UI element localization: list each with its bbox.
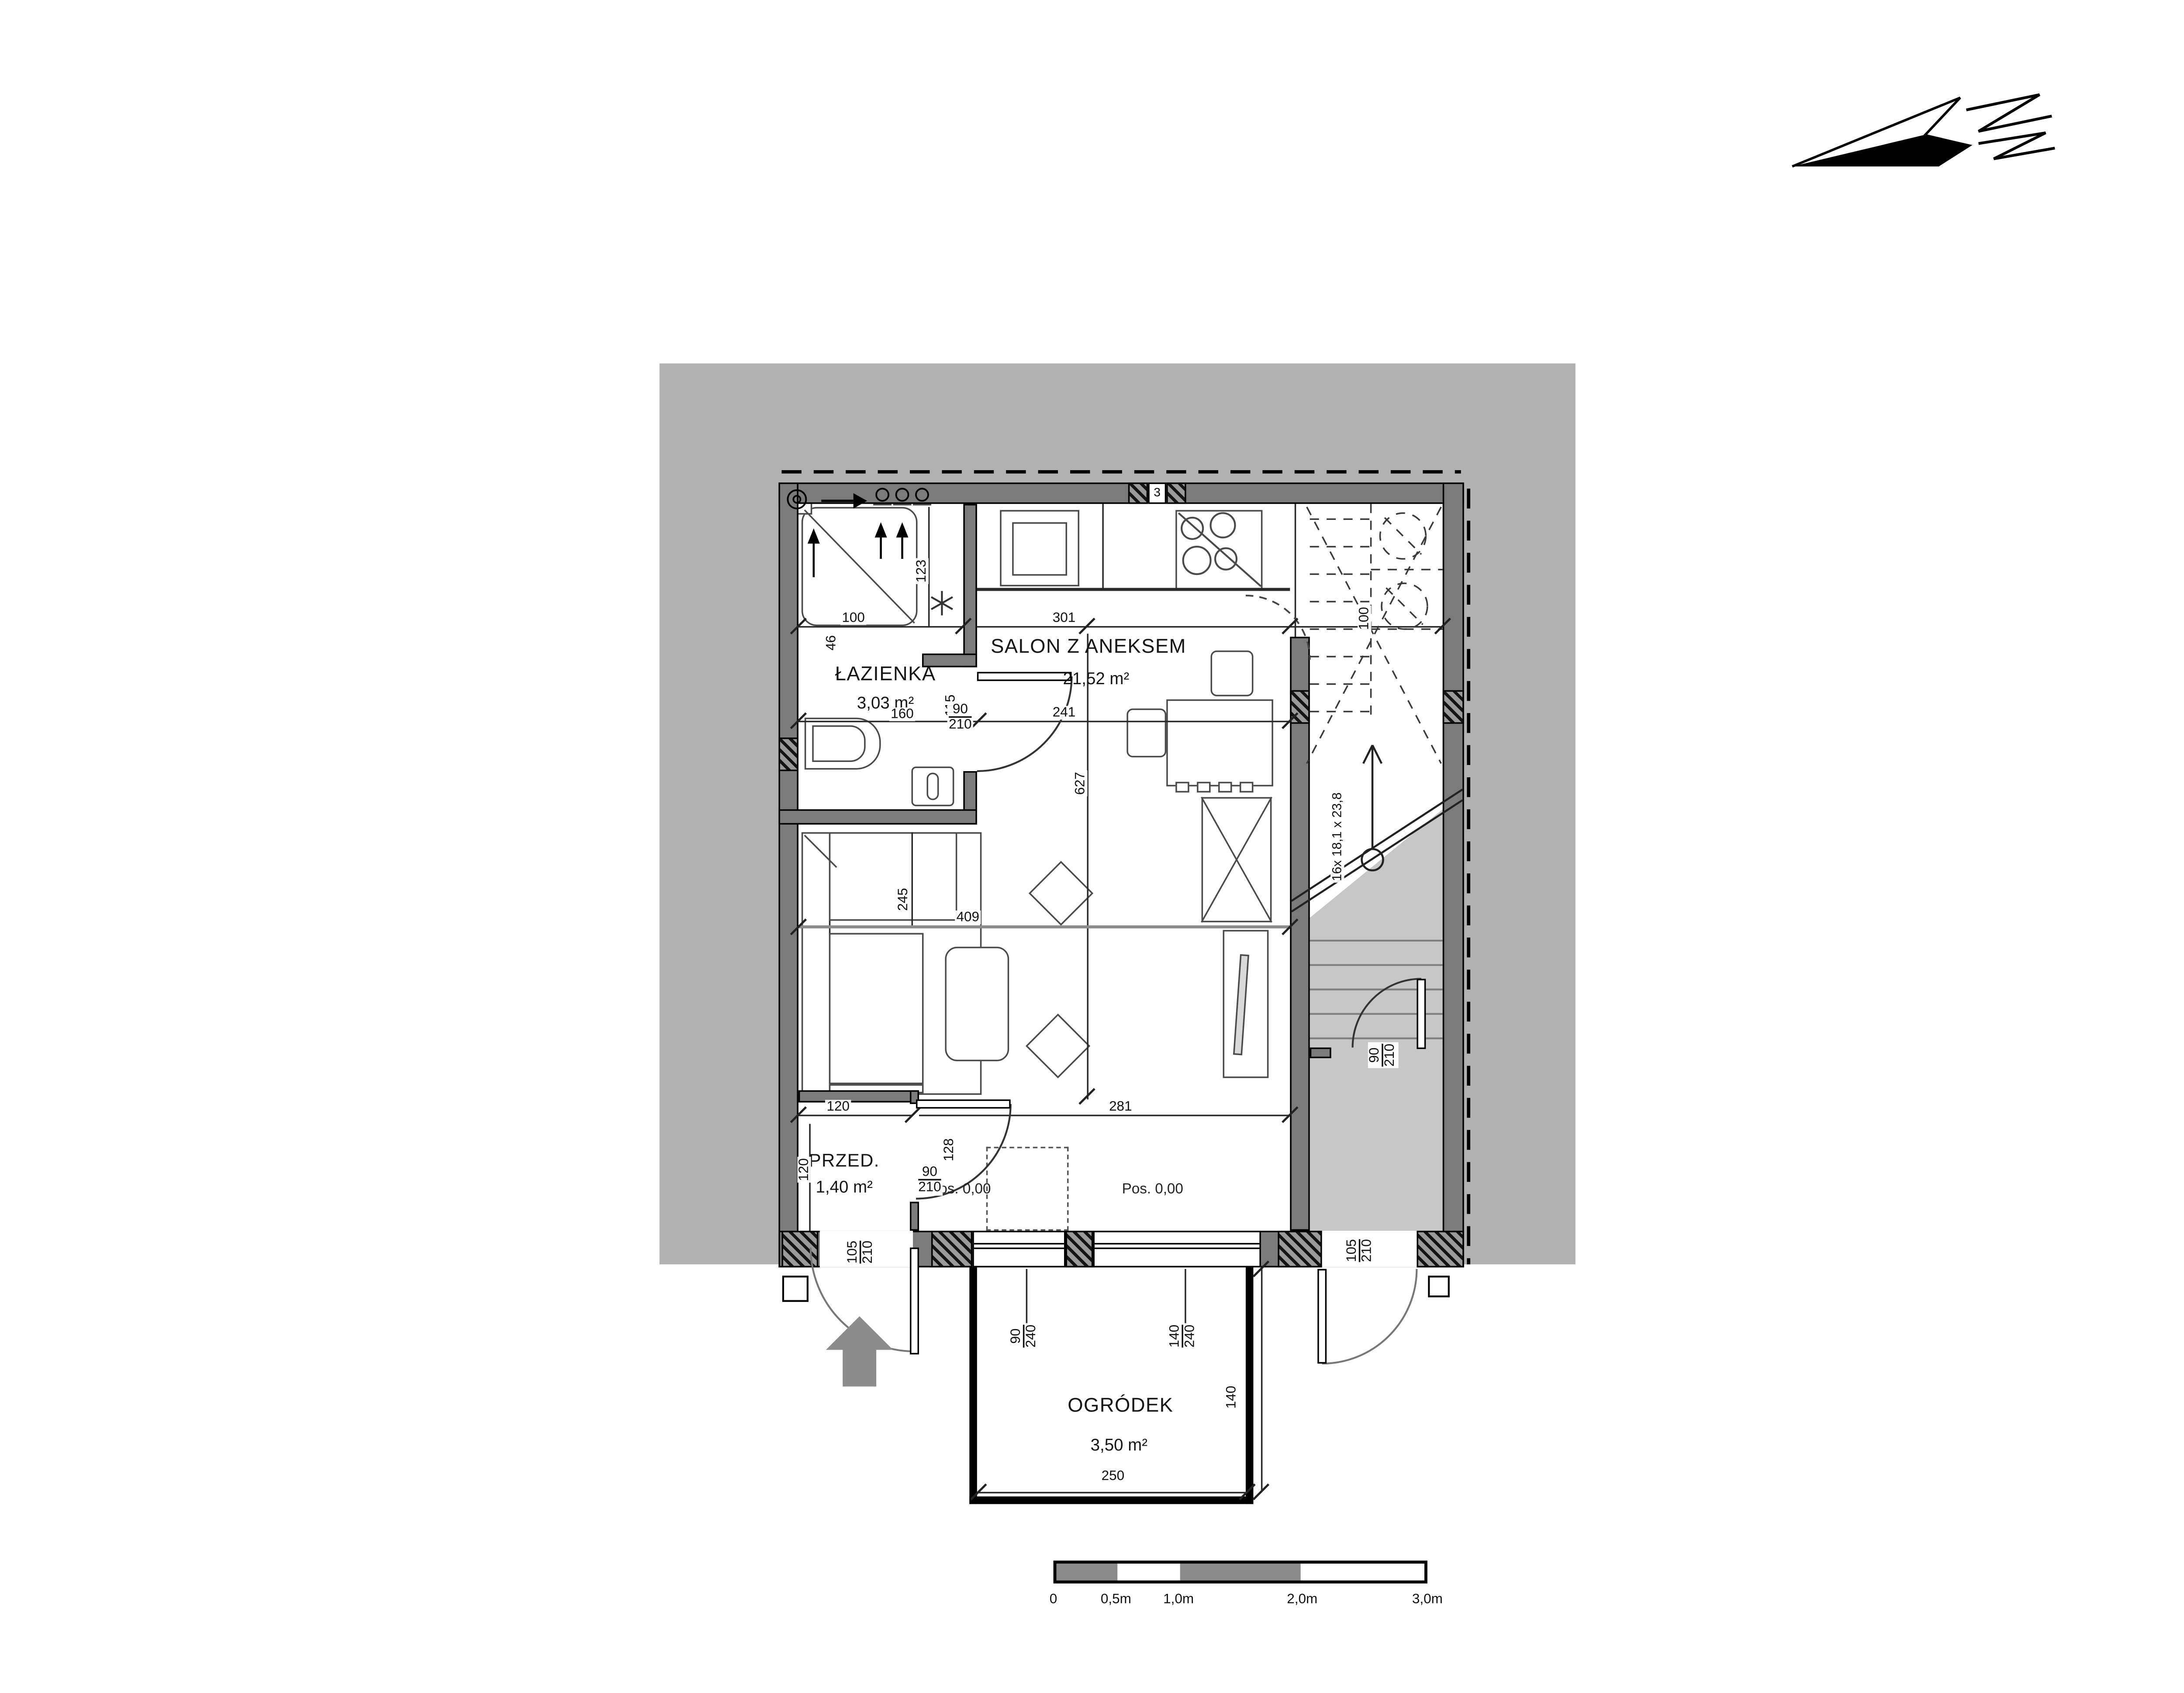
dim-line [978,1492,1247,1493]
scale-label: 0 [1050,1591,1057,1606]
right-exit-door-arc [1322,1269,1417,1364]
shaft-marker: 3 [1148,482,1166,504]
riser-arrow-icon [875,522,909,559]
scale-seg [1057,1564,1118,1580]
dim-line [1185,1269,1186,1325]
dim-label: 120 [825,1100,851,1114]
dim-label: 120 [797,1156,812,1183]
floorplan-page: 3 [0,0,2184,1692]
bath-door-arc [977,676,1072,771]
dim-label: 250 [1100,1469,1126,1484]
dim-ticks [791,618,1450,1499]
scale-label: 1,0m [1163,1591,1194,1606]
dim-label: 627 [1074,770,1088,796]
dim-label: 301 [1051,611,1077,626]
cooktop-burners-icon [1178,513,1261,586]
dim-label: 123 [915,558,929,584]
door-size-label: 90210 [1368,1042,1398,1068]
scale-seg [1118,1564,1179,1580]
landing-door-arc [1353,979,1421,1047]
scale-label: 0,5m [1101,1591,1131,1606]
dim-line [1026,1269,1027,1325]
dim-label: 160 [889,707,916,722]
room-area-ogrodek: 3,50 m² [1091,1437,1147,1455]
door-size-label: 90210 [917,1165,943,1195]
scale-bar [1054,1561,1427,1583]
dim-label: 46 [825,634,839,652]
washing-machine-icon [788,490,806,509]
dim-label: 281 [1108,1100,1134,1114]
developer-logo [1792,95,2055,166]
door-size-label: 90240 [1009,1323,1039,1349]
bath-door-leaf [977,672,1072,681]
wardrobe-cross [1202,797,1272,922]
room-label-ogrodek: OGRÓDEK [1068,1393,1173,1416]
dim-label: 100 [840,611,867,626]
dim-label: 140 [1225,1384,1239,1410]
right-exit-door-leaf [1317,1269,1327,1364]
scale-label: 2,0m [1287,1591,1317,1606]
entry-door-leaf [910,1247,919,1354]
exterior-drain-boxes [783,1277,1449,1301]
dim-label: 16x 18,1 x 23,8 [1330,791,1344,883]
shaft-marker-label: 3 [1154,485,1161,499]
flow-arrow-icon [821,493,867,509]
landing-door-leaf [1417,979,1426,1049]
dim-label: 100 [1358,606,1372,632]
przed-door-leaf [916,1099,1011,1108]
shower-arrow-icon [808,528,820,577]
room-label-przedpokoj: PRZED. [809,1150,880,1171]
meter-dial-icons [876,488,928,501]
stair-upper-flight-dashed [1307,504,1443,763]
vent-symbol-icon [931,591,953,616]
scale-seg [1179,1564,1301,1580]
door-size-label: 105210 [1345,1238,1375,1264]
room-label-salon: SALON Z ANEKSEM [991,634,1186,657]
dim-label: 241 [1051,706,1077,720]
sofa-corner-line [805,835,836,867]
dim-label: 245 [897,886,911,913]
upper-door-arc-dashed [1246,595,1310,660]
door-size-label: 90210 [947,703,974,733]
dim-label: 128 [942,1137,957,1163]
scale-label: 3,0m [1412,1591,1443,1606]
stair-walk-line [1362,745,1383,871]
dim-line [1261,1269,1262,1492]
entry-arrow-icon [826,1316,893,1387]
shower-diagonal [805,510,915,623]
room-area-salon: 21,52 m² [1063,670,1130,689]
room-area-przedpokoj: 1,40 m² [816,1179,873,1197]
room-label-lazienka: ŁAZIENKA [835,662,936,685]
scale-seg [1301,1564,1424,1580]
door-size-label: 140240 [1168,1323,1198,1349]
level-label: Pos. 0,00 [1122,1181,1183,1198]
dim-label: 409 [955,911,981,925]
door-size-label: 105210 [846,1239,876,1265]
